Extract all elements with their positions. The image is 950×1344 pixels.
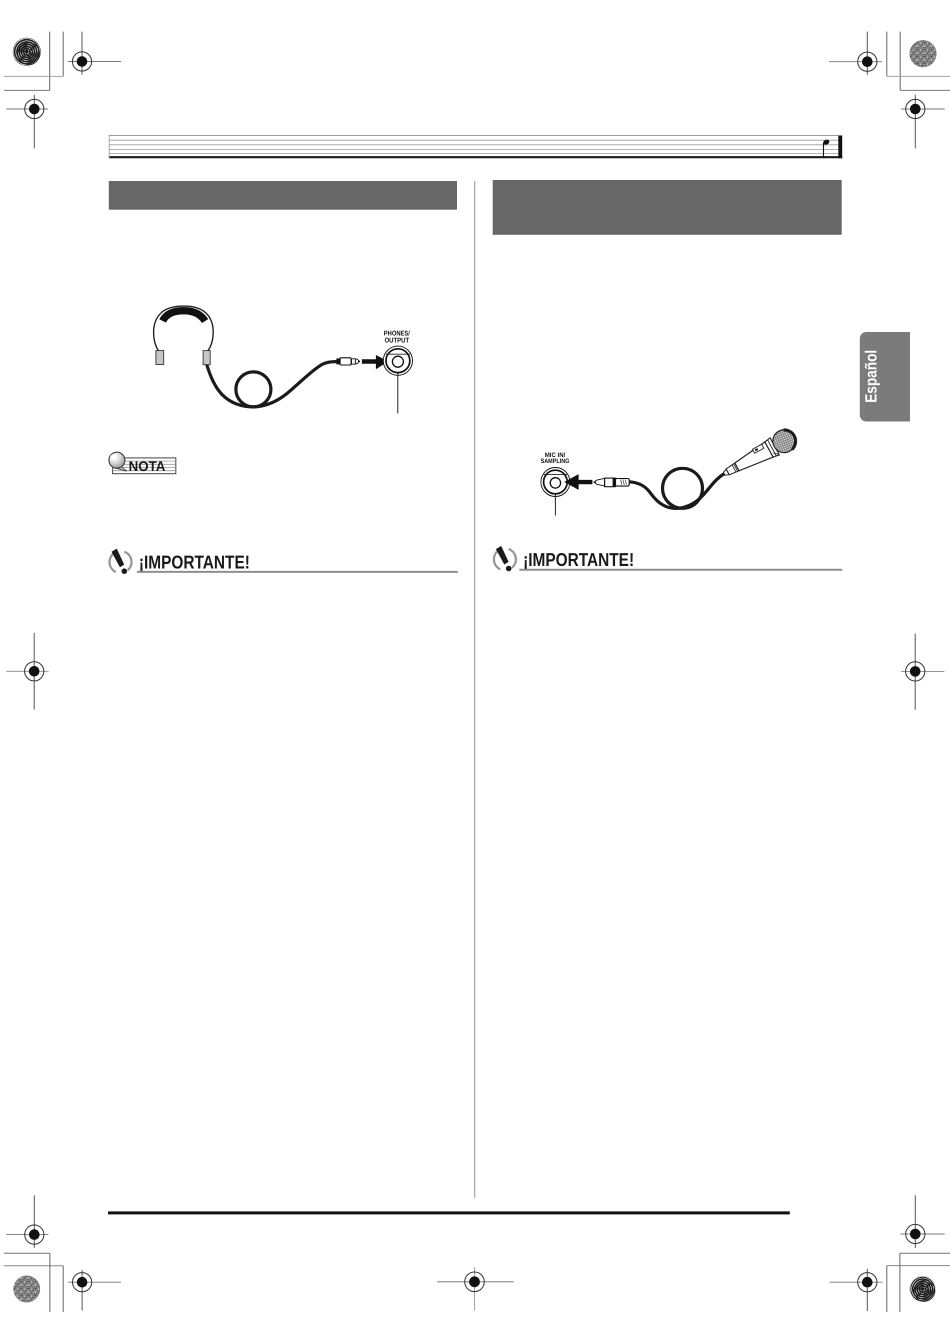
svg-text:¡IMPORTANTE!: ¡IMPORTANTE!	[523, 549, 634, 570]
svg-text:Español: Español	[862, 350, 880, 403]
svg-text:¡IMPORTANTE!: ¡IMPORTANTE!	[139, 551, 250, 572]
svg-text:OUTPUT: OUTPUT	[385, 337, 410, 344]
svg-text:SAMPLING: SAMPLING	[541, 458, 570, 465]
svg-text:NOTA: NOTA	[129, 458, 166, 474]
